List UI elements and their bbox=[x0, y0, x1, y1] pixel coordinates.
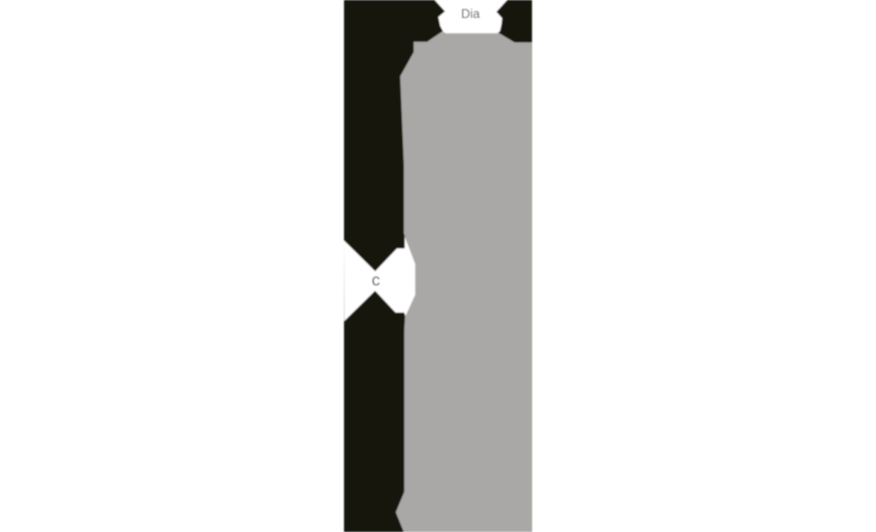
svg-text:c: c bbox=[372, 270, 381, 289]
svg-text:Dia: Dia bbox=[461, 7, 480, 21]
